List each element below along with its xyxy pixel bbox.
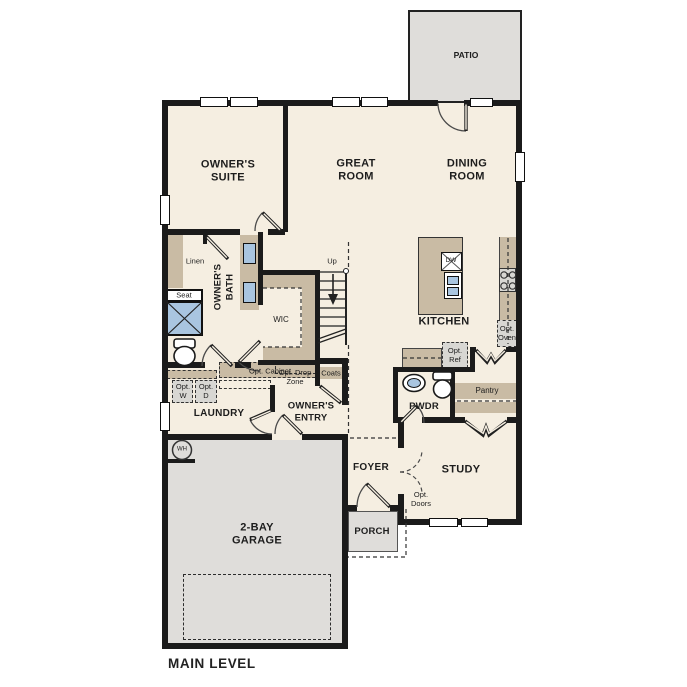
vanity-sink-1 [243,243,256,264]
window [461,518,488,527]
window [332,97,360,107]
vanity-sink-2 [243,282,256,303]
wall [398,494,404,523]
laundry-shelf [167,370,217,379]
wall [258,275,263,305]
wall [315,364,320,386]
opt-cabinet-ext [219,380,271,389]
wall [342,364,348,405]
window [470,98,493,107]
wall [408,100,438,106]
pantry-shelf-2 [455,402,516,413]
wall [258,232,263,275]
wall [506,347,516,352]
window [200,97,228,107]
opt-washer-box [172,380,193,403]
cooktop [499,268,516,292]
floor-plan: PATIO OWNER'S SUITE GREAT ROOM DINING RO… [0,0,687,687]
pantry-shelf-1 [455,383,516,399]
wall [258,270,320,275]
wall [162,362,205,368]
wall [162,100,168,649]
wall [398,519,522,525]
wic-shelf-top [263,275,315,288]
garage-door-outline [183,574,331,640]
island-sink-basin-1 [447,276,459,285]
linen-shelf [167,234,183,288]
wic-shelf-bottom [263,347,315,360]
wall [258,360,320,365]
wall [162,229,240,235]
wall [470,347,476,352]
wall [507,417,516,423]
wall [422,417,465,423]
wic-shelf-right [302,288,315,347]
shower [166,301,203,336]
opt-dryer-box [195,380,217,403]
wall [165,459,195,463]
porch-area [348,511,398,552]
window [515,152,525,182]
window [361,97,388,107]
wall [342,437,348,649]
wall [203,232,207,244]
wall [450,372,455,417]
page-title: MAIN LEVEL [168,656,256,672]
wall [268,229,285,235]
wall [315,270,320,365]
wall [390,505,398,511]
island-sink-basin-2 [447,287,459,296]
wall [235,362,251,368]
wall [393,372,398,423]
wall [162,643,348,649]
window [429,518,458,527]
opt-oven-box [497,320,517,347]
wall [283,100,288,232]
window [160,402,170,431]
wall [398,417,404,448]
wall [348,505,357,511]
coats-shelf [319,367,343,379]
window [160,195,170,225]
ref-counter [402,348,442,368]
opt-ref-box [442,342,468,368]
wall [162,434,272,440]
dishwasher [441,252,462,271]
wall [270,385,275,412]
wall [302,434,348,440]
patio-area [408,10,522,103]
window [230,97,258,107]
wall [393,367,475,372]
